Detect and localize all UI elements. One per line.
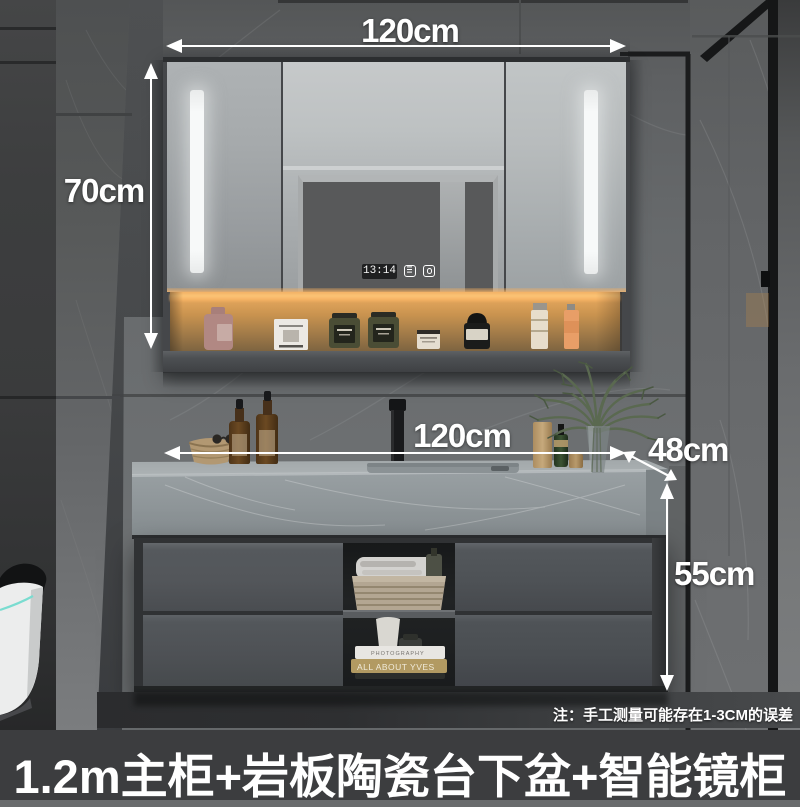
svg-text:ALL ABOUT YVES: ALL ABOUT YVES	[357, 662, 435, 672]
svg-text:PHOTOGRAPHY: PHOTOGRAPHY	[371, 651, 425, 657]
